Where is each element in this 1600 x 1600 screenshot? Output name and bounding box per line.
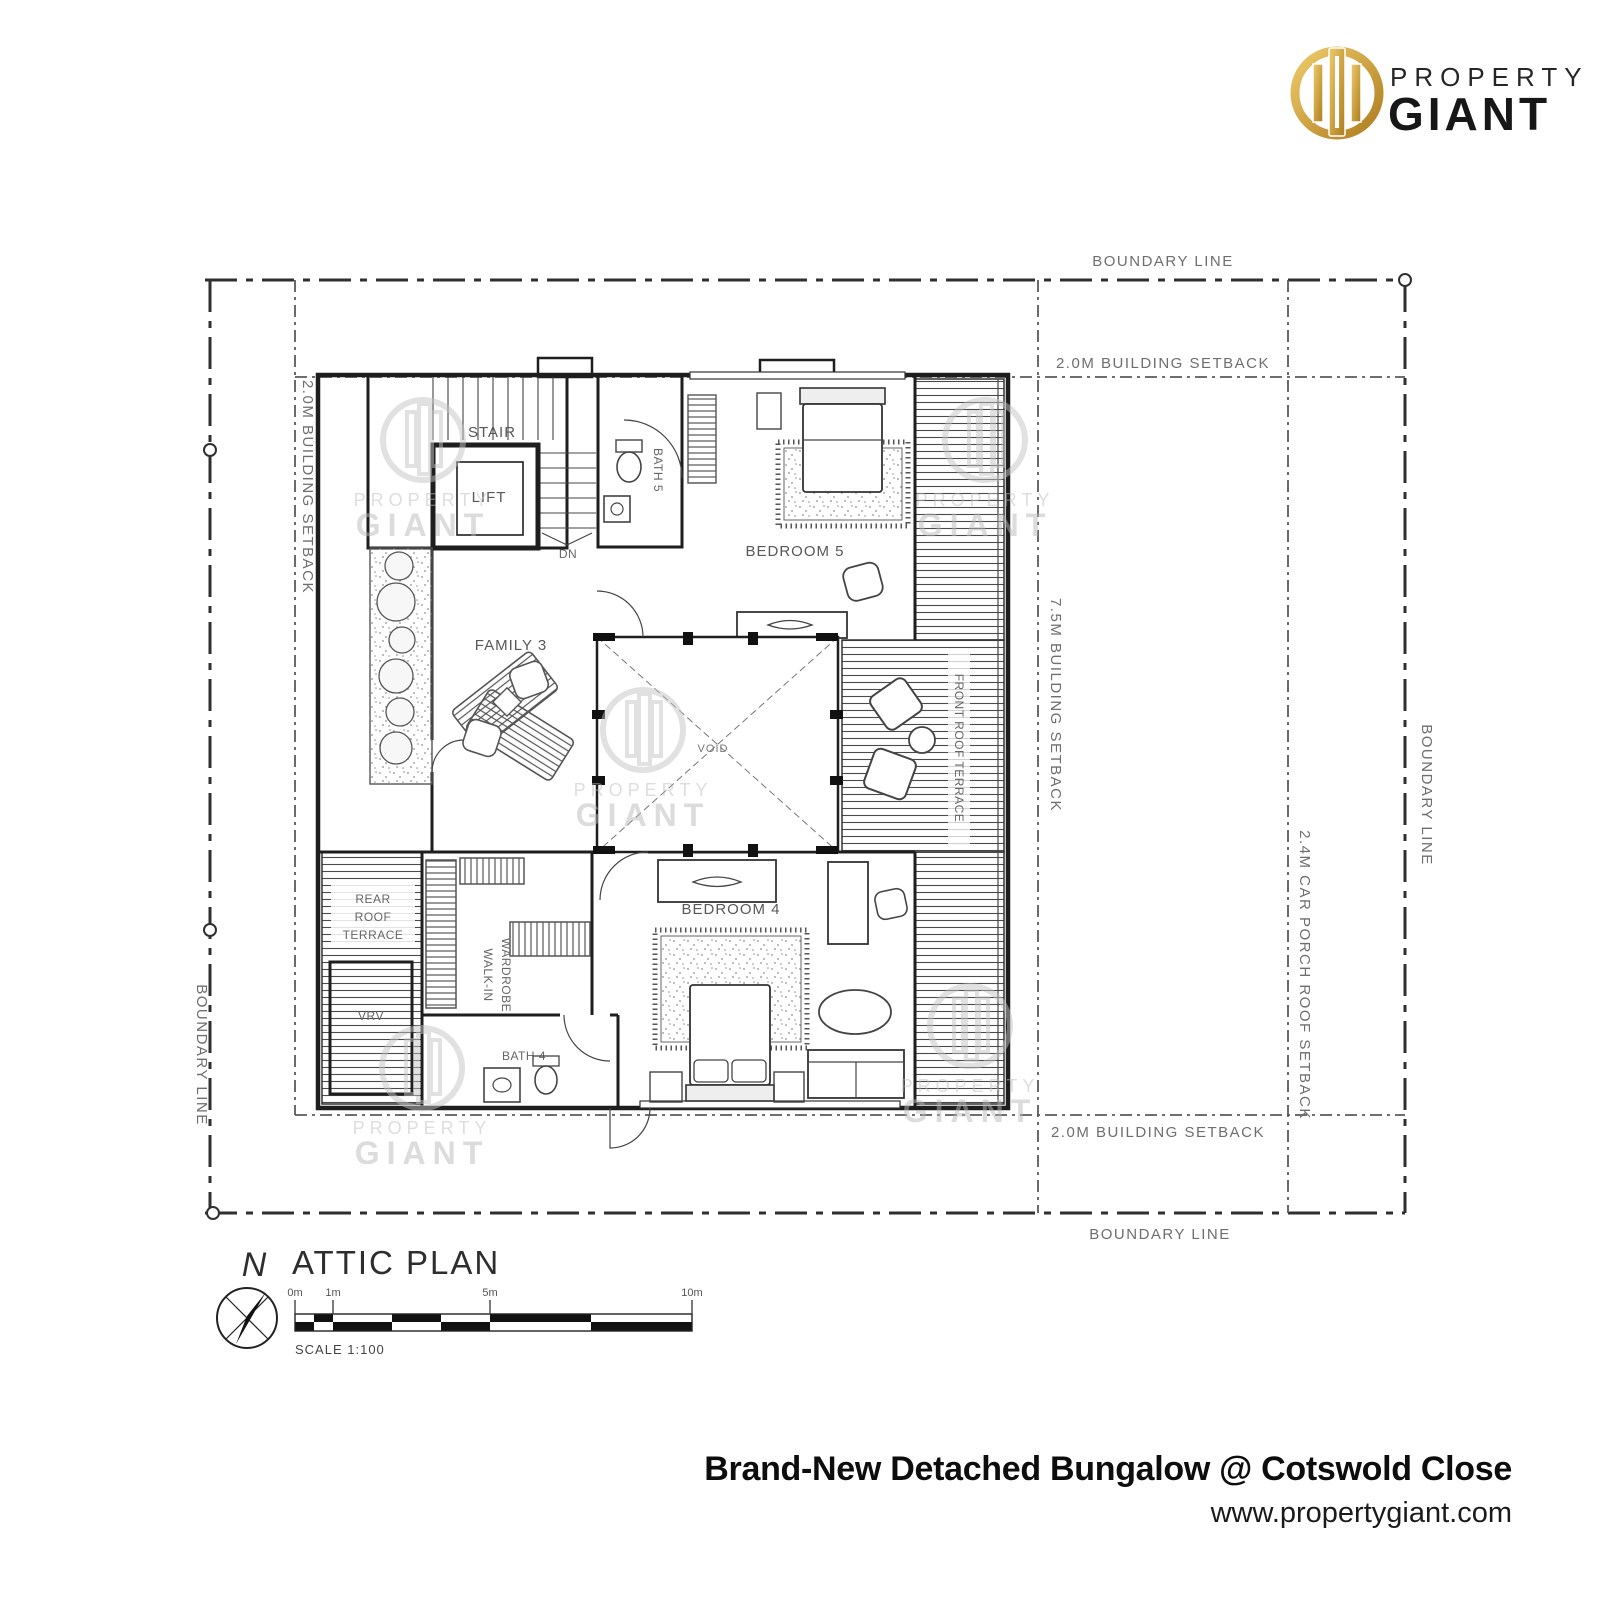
label-setback-carporch: 2.4M CAR PORCH ROOF SETBACK (1296, 830, 1313, 1120)
toilet-bowl-4 (535, 1066, 557, 1094)
label-boundary-top: BOUNDARY LINE (1092, 253, 1234, 270)
toilet-bowl (617, 452, 641, 482)
window-top (690, 372, 905, 379)
label-rear-terrace-1: REAR (355, 892, 390, 906)
scale-tick-0: 0m (287, 1287, 302, 1299)
side-table-right (774, 1072, 804, 1102)
scale-tick-10: 10m (681, 1287, 702, 1299)
label-wardrobe-2: WARDROBE (499, 938, 513, 1012)
scale-bar: 0m 1m 5m 10m SCALE 1:100 (287, 1287, 702, 1357)
label-setback-front: 7.5M BUILDING SETBACK (1047, 598, 1064, 812)
plan-title: ATTIC PLAN (292, 1244, 500, 1281)
planter (370, 548, 432, 784)
label-bath5: BATH 5 (651, 448, 665, 492)
door-arc-bedroom4 (600, 852, 648, 900)
shelving (688, 395, 716, 483)
door-arc-bath4 (564, 1015, 610, 1061)
walkin-wardrobe: WALK-IN WARDROBE (426, 858, 590, 1012)
bed-bedroom5 (800, 388, 885, 492)
label-boundary-left: BOUNDARY LINE (193, 984, 210, 1126)
desk-chair (873, 887, 908, 921)
label-wardrobe-1: WALK-IN (481, 948, 495, 1001)
label-vrv: VRV (358, 1009, 384, 1023)
label-setback-top: 2.0M BUILDING SETBACK (1056, 355, 1270, 372)
sink-4 (484, 1068, 520, 1102)
label-rear-terrace-3: TERRACE (343, 928, 404, 942)
bath5: BATH 5 (598, 375, 682, 547)
label-setback-bottom: 2.0M BUILDING SETBACK (1051, 1124, 1265, 1141)
door-arc-exterior (610, 1108, 650, 1148)
scale-tick-5: 5m (482, 1287, 497, 1299)
footer: Brand-New Detached Bungalow @ Cotswold C… (704, 1450, 1512, 1530)
ottoman (819, 990, 891, 1034)
label-bedroom5: BEDROOM 5 (745, 543, 844, 560)
label-boundary-bottom: BOUNDARY LINE (1089, 1226, 1231, 1243)
brand-word2: GIANT (1388, 88, 1551, 140)
compass-icon (217, 1288, 277, 1348)
brand-logo: PROPERTY GIANT (1295, 48, 1589, 140)
console-bedroom4 (658, 860, 776, 902)
label-dn: DN (559, 547, 577, 561)
label-family3: FAMILY 3 (475, 637, 547, 654)
wardrobe-rack-2 (460, 858, 524, 884)
label-setback-left: 2.0M BUILDING SETBACK (299, 380, 316, 594)
toilet-tank (616, 440, 642, 452)
side-table-left (650, 1072, 682, 1102)
label-bedroom4: BEDROOM 4 (681, 901, 780, 918)
north-letter: N (242, 1246, 267, 1284)
label-boundary-right: BOUNDARY LINE (1418, 724, 1435, 866)
bath4: BATH 4 (484, 1015, 610, 1102)
bench (757, 393, 781, 429)
chair-bedroom5 (841, 561, 885, 603)
label-stair: STAIR (468, 424, 516, 441)
family3: FAMILY 3 (432, 637, 575, 782)
scale-tick-1: 1m (325, 1287, 340, 1299)
sink (604, 496, 630, 522)
listing-title: Brand-New Detached Bungalow @ Cotswold C… (704, 1450, 1512, 1489)
label-void: VOID (698, 743, 729, 755)
desk-bedroom4 (828, 862, 868, 944)
title-block: N ATTIC PLAN 0m 1m 5m 10m SCALE 1:100 (217, 1244, 703, 1357)
label-rear-terrace-2: ROOF (355, 910, 392, 924)
bedroom5: BEDROOM 5 (688, 388, 908, 638)
sofa-bedroom4 (808, 1050, 904, 1098)
scale-label: SCALE 1:100 (295, 1342, 385, 1357)
wardrobe-rack-3 (510, 922, 590, 956)
door-arc-hall (597, 591, 643, 637)
wardrobe-rack-1 (426, 860, 456, 1008)
website-url: www.propertygiant.com (704, 1497, 1512, 1530)
attic-floor-plan: PROPERTY GIANT BOUNDARY LINE BOUNDARY LI… (0, 0, 1600, 1600)
door-arc-family (432, 740, 464, 772)
label-front-terrace: FRONT ROOF TERRACE (952, 674, 966, 823)
watermark-1 (354, 400, 493, 543)
terrace-table (909, 727, 935, 753)
